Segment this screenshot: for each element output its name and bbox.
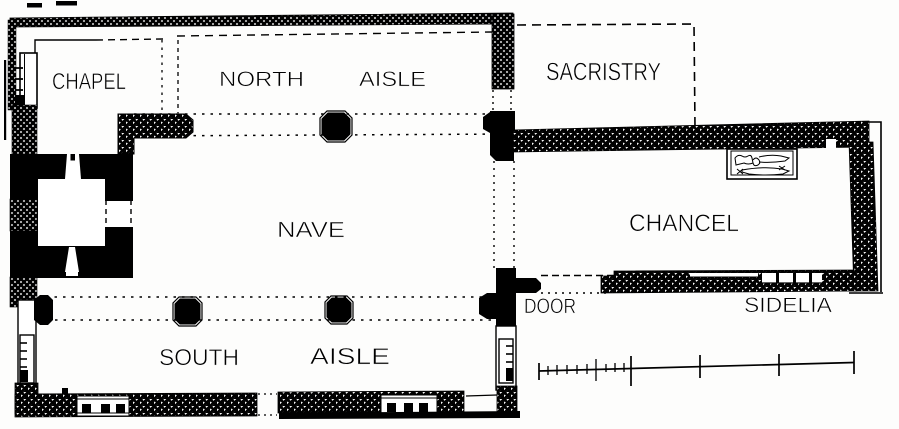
svg-text:AISLE: AISLE [310, 343, 390, 369]
svg-text:SACRISTRY: SACRISTRY [546, 58, 661, 86]
svg-text:SOUTH: SOUTH [159, 344, 239, 370]
svg-text:CHANCEL: CHANCEL [629, 210, 739, 237]
svg-text:DOOR: DOOR [524, 295, 576, 318]
svg-text:AISLE: AISLE [359, 68, 426, 91]
svg-text:SIDELIA: SIDELIA [744, 294, 832, 317]
svg-text:CHAPEL: CHAPEL [52, 68, 126, 94]
svg-text:NORTH: NORTH [219, 68, 304, 91]
svg-text:NAVE: NAVE [277, 217, 345, 242]
